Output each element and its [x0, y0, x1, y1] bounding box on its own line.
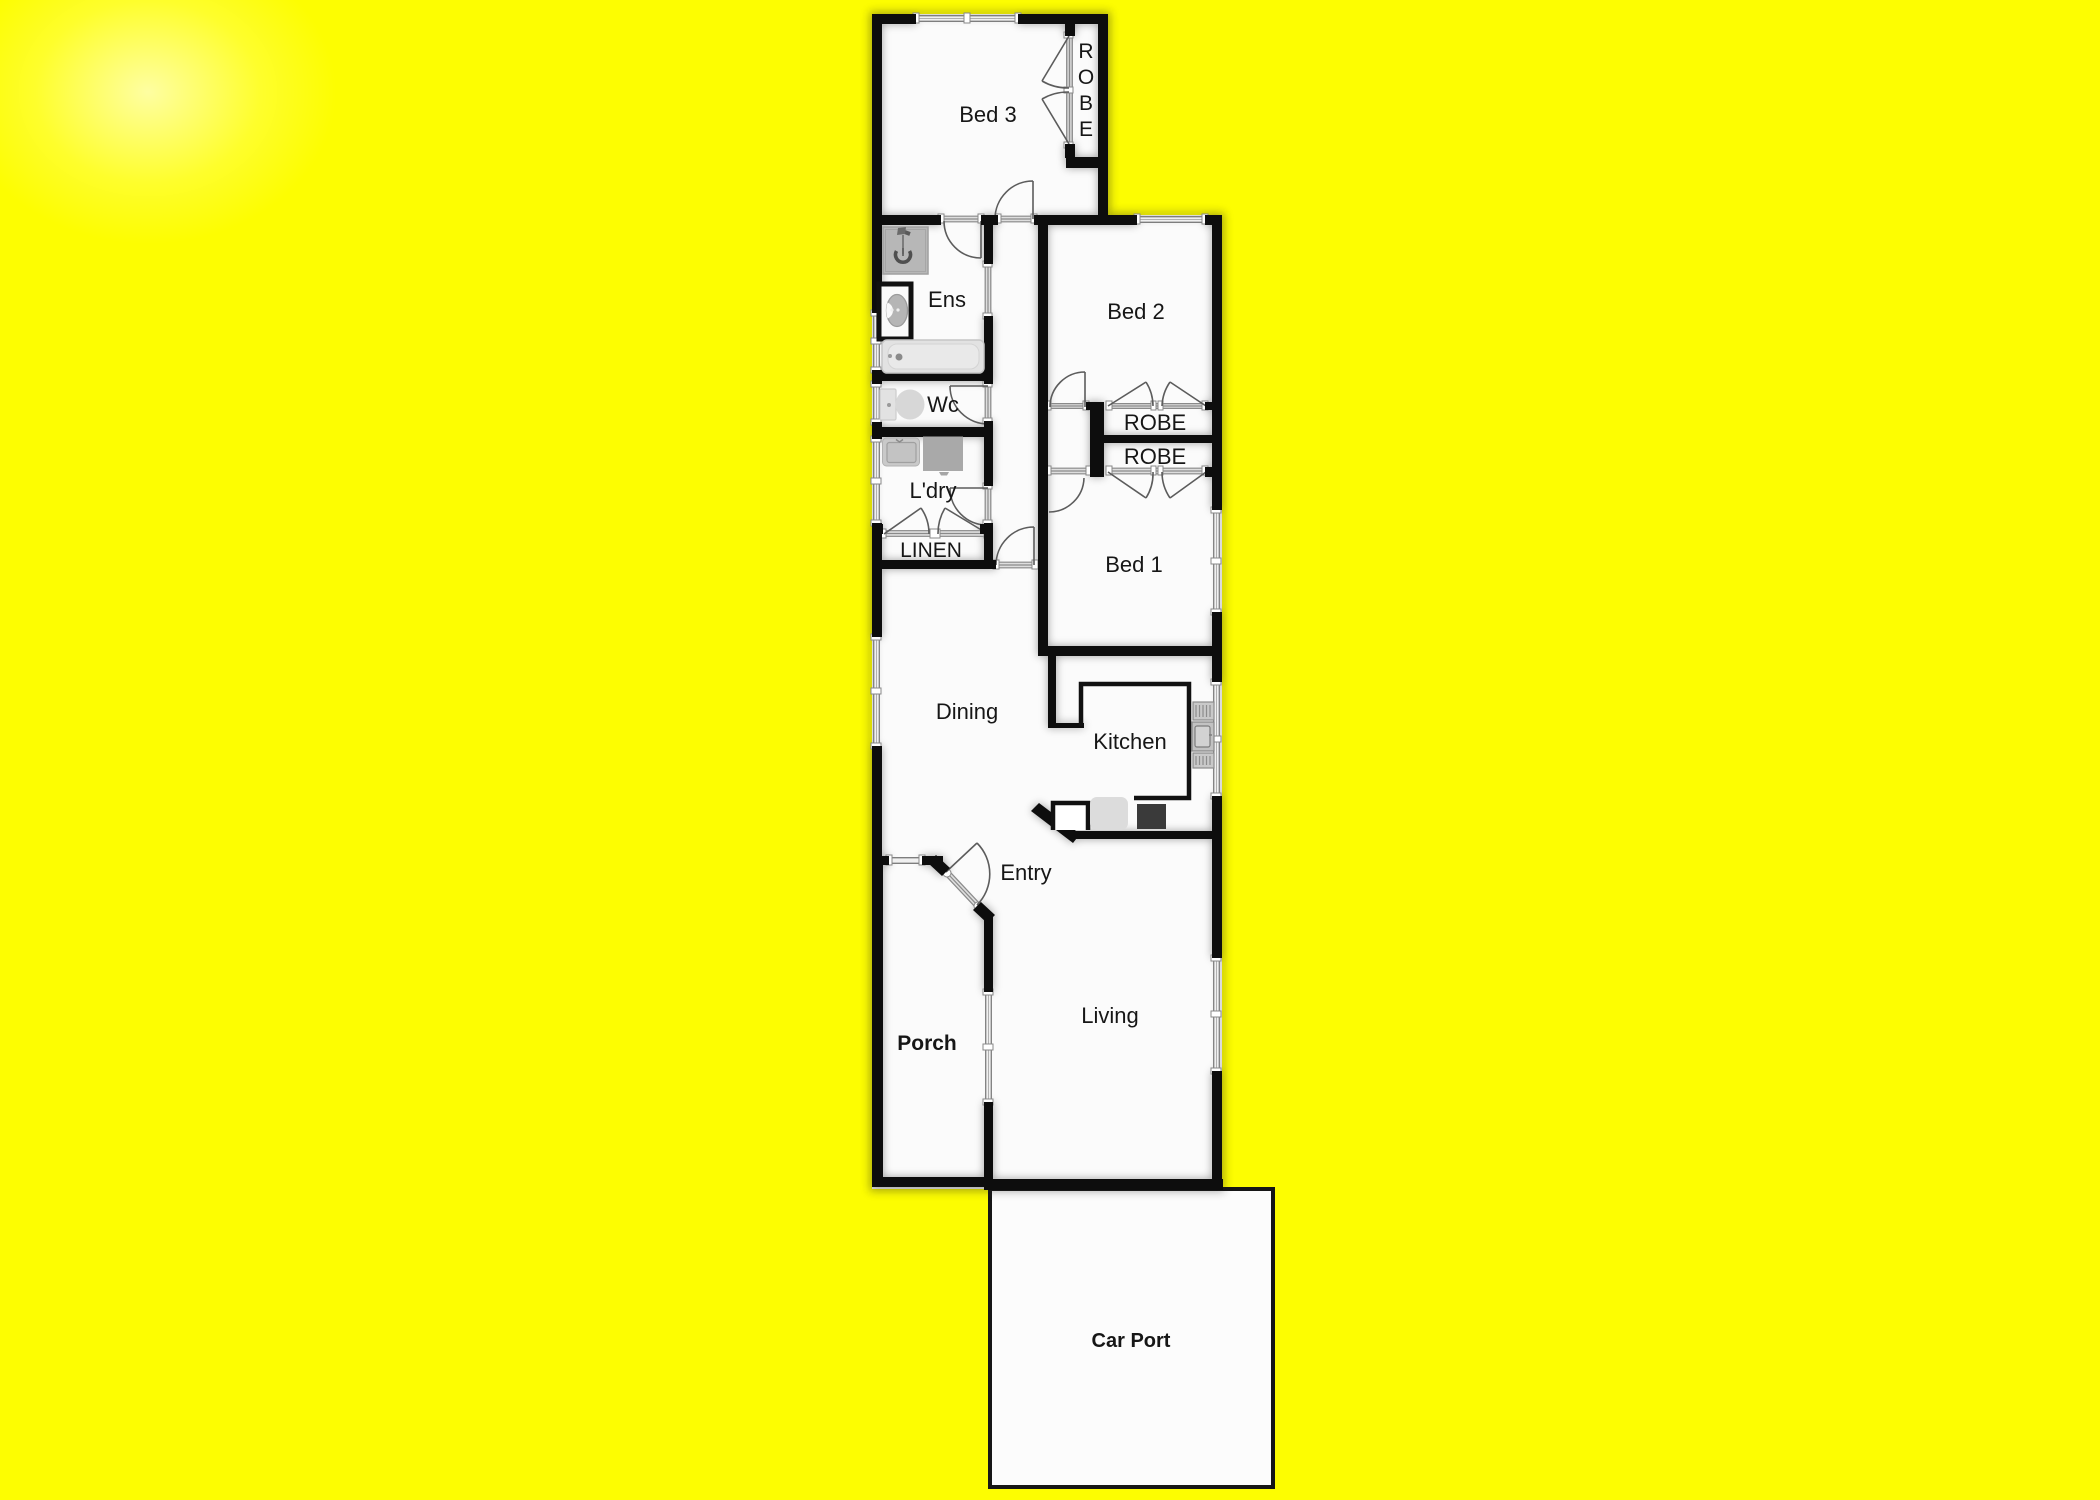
svg-text:ROBE: ROBE	[1124, 410, 1186, 435]
svg-text:Kitchen: Kitchen	[1093, 729, 1166, 754]
svg-text:ROBE: ROBE	[1124, 444, 1186, 469]
svg-text:L'dry: L'dry	[910, 478, 957, 503]
svg-text:Dining: Dining	[936, 699, 998, 724]
svg-text:Entry: Entry	[1000, 860, 1051, 885]
svg-text:Living: Living	[1081, 1003, 1138, 1028]
svg-text:B: B	[1079, 92, 1093, 115]
svg-text:Porch: Porch	[897, 1032, 957, 1055]
svg-text:E: E	[1079, 118, 1093, 141]
svg-text:Wc: Wc	[927, 392, 959, 417]
svg-text:Bed 2: Bed 2	[1107, 299, 1165, 324]
svg-text:Car Port: Car Port	[1092, 1330, 1171, 1352]
svg-text:O: O	[1078, 66, 1094, 89]
svg-text:Bed 3: Bed 3	[959, 102, 1017, 127]
svg-text:Bed 1: Bed 1	[1105, 552, 1163, 577]
svg-text:LINEN: LINEN	[900, 539, 962, 562]
svg-text:R: R	[1078, 40, 1093, 63]
svg-text:Ens: Ens	[928, 287, 966, 312]
